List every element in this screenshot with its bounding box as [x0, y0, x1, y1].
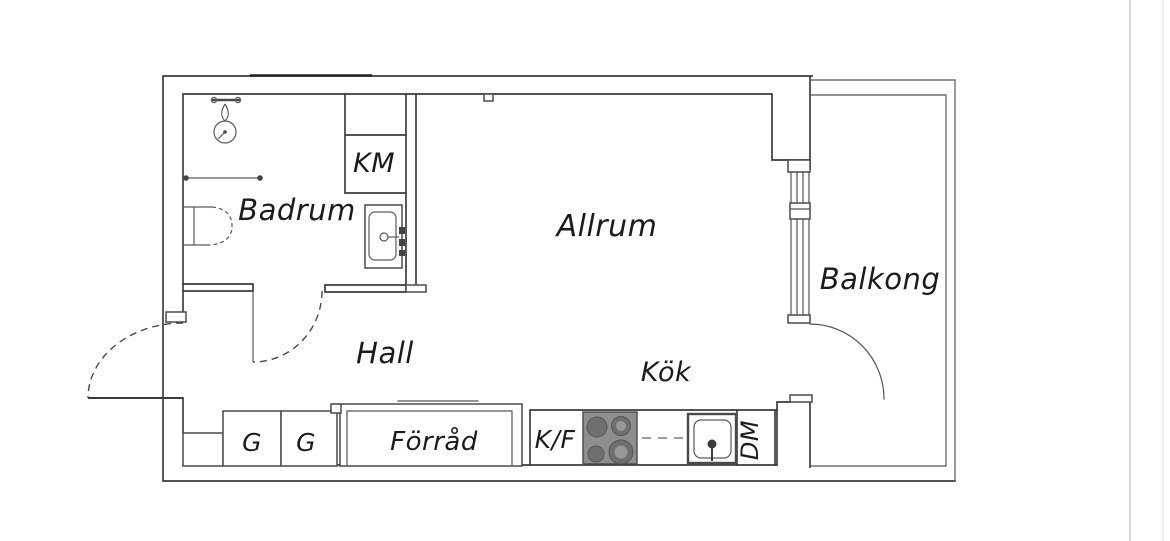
burner-icon [587, 417, 607, 437]
balcony-door-sill [790, 395, 812, 402]
storage-jamb-cap [331, 404, 341, 413]
scanned-floor-plan-page: Balkong KM [0, 0, 1170, 541]
towel-rail-end [257, 175, 263, 181]
storage-label: Förråd [390, 426, 478, 457]
stove [583, 412, 637, 464]
balcony-door-swing-arc [810, 324, 884, 399]
lamp-spoke [218, 132, 225, 139]
sink-mount-tab [399, 250, 405, 256]
window-rails [791, 172, 809, 315]
kitchen: Kök K/F DM [530, 357, 777, 465]
kitchen-label: Kök [641, 357, 692, 388]
bathroom-label: Badrum [238, 193, 356, 227]
living-room: Allrum [555, 209, 658, 244]
floor-plan-drawing: Balkong KM [0, 0, 1170, 541]
kitchen-faucet-icon [708, 440, 717, 449]
burner-inner-ring [616, 421, 626, 431]
utility-box [183, 433, 223, 466]
bathroom: KM [183, 94, 426, 362]
towel-rail [183, 175, 263, 181]
wardrobe-1: G [223, 411, 281, 466]
living-room-label: Allrum [555, 209, 658, 244]
balcony: Balkong [788, 80, 955, 481]
balcony-label: Balkong [820, 262, 941, 296]
dishwasher-label: DM [736, 420, 764, 460]
hall-label: Hall [356, 336, 414, 370]
dishwasher: DM [736, 420, 764, 460]
allrum-wall-notch [484, 94, 493, 101]
window-top-cap [788, 160, 810, 172]
sink-mount-tab [399, 239, 405, 246]
toilet [184, 207, 232, 245]
kitchen-sink [688, 414, 736, 463]
bathroom-wall-foot [406, 285, 426, 292]
washing-machine: KM [345, 94, 406, 193]
toilet-tank [184, 207, 212, 245]
entry-jamb-cap [166, 312, 186, 322]
towel-rail-end [183, 175, 189, 181]
sink-mount-tab [399, 227, 405, 234]
fridge-freezer-label: K/F [535, 425, 576, 454]
window-crossbar [790, 203, 810, 219]
hall: Hall G G Förråd [88, 323, 522, 466]
burner-inner-ring [615, 446, 628, 459]
wardrobe-label: G [296, 428, 316, 457]
balcony-door [790, 324, 884, 402]
toilet-bowl [210, 207, 232, 245]
wardrobe-2: G [281, 411, 337, 466]
storage-closet: Förråd [331, 401, 522, 466]
wardrobe-label: G [242, 428, 262, 457]
entry-door-swing-arc [88, 323, 183, 398]
burner-icon [588, 446, 604, 462]
bathroom-sink [365, 205, 405, 268]
balcony-window [788, 160, 810, 323]
bathroom-door-swing-arc [253, 291, 322, 362]
window-bottom-cap [788, 315, 810, 323]
entry-door [88, 323, 183, 398]
lamp-cord [222, 104, 229, 121]
scan-artifacts [1130, 0, 1163, 541]
ceiling-lamp-icon [211, 97, 241, 143]
bathroom-door [253, 291, 322, 362]
washing-machine-label: KM [353, 148, 395, 179]
fridge-freezer: K/F [535, 425, 576, 454]
